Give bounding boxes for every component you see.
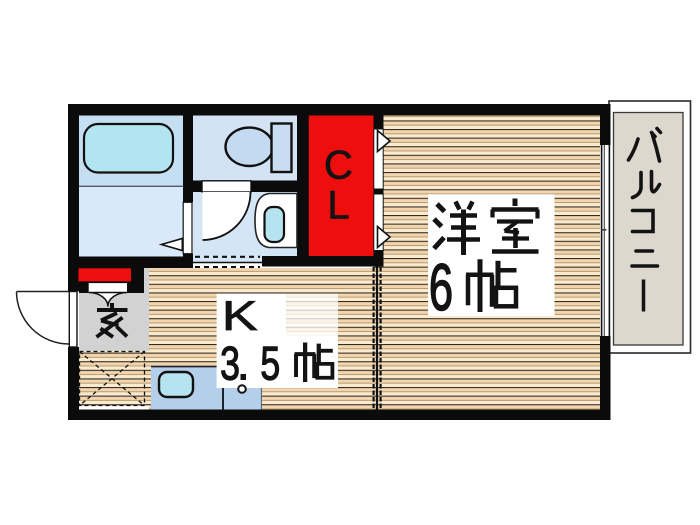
svg-text:C: C [324, 144, 353, 188]
svg-text:3: 3 [220, 337, 240, 390]
svg-text:L: L [327, 183, 349, 227]
svg-text:5: 5 [260, 337, 280, 390]
svg-text:6: 6 [429, 250, 453, 324]
svg-text:K: K [222, 293, 258, 340]
